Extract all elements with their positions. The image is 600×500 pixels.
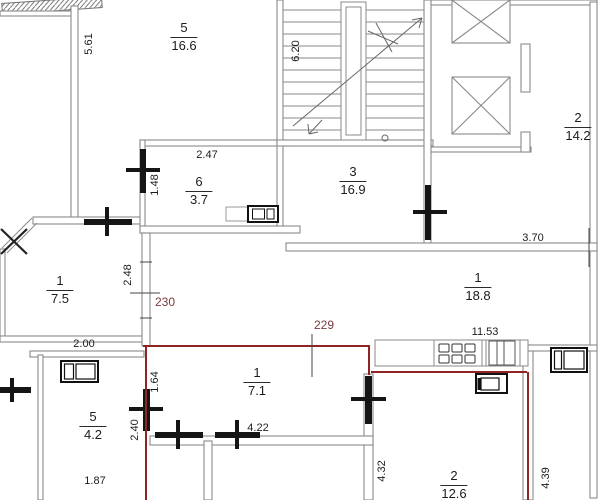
room-area: 7.1 bbox=[243, 383, 270, 399]
room-area: 16.9 bbox=[339, 182, 366, 198]
room-number: 2 bbox=[440, 469, 467, 486]
dimension-label: 1.87 bbox=[84, 475, 105, 487]
room-label-5-16.6: 5 16.6 bbox=[170, 21, 197, 54]
stairs-icon bbox=[283, 2, 424, 141]
dimension-label: 4.32 bbox=[376, 460, 388, 481]
room-area: 18.8 bbox=[464, 288, 491, 304]
room-label-3-16.9: 3 16.9 bbox=[339, 165, 366, 198]
unit-number-label: 230 bbox=[155, 295, 175, 309]
dimension-label: 4.22 bbox=[247, 422, 268, 434]
dimension-label: 11.53 bbox=[472, 326, 499, 338]
dimension-label: 1.48 bbox=[149, 174, 161, 195]
room-number: 2 bbox=[564, 111, 591, 128]
room-area: 7.5 bbox=[46, 291, 73, 307]
room-number: 1 bbox=[243, 366, 270, 383]
room-number: 6 bbox=[185, 175, 212, 192]
room-area: 4.2 bbox=[79, 427, 106, 443]
dimension-label: 1.64 bbox=[149, 371, 161, 392]
dimension-label: 2.00 bbox=[73, 338, 94, 350]
room-area: 14.2 bbox=[564, 128, 591, 144]
appliance-icon bbox=[551, 348, 587, 372]
bathroom-sink-icon bbox=[226, 206, 278, 222]
window-cross-icon bbox=[1, 229, 27, 254]
floor-plan: 5 16.6 6 3.7 3 16.9 2 14.2 1 7.5 1 18.8 … bbox=[0, 0, 600, 500]
kitchen-counter bbox=[375, 340, 528, 366]
room-number: 3 bbox=[339, 165, 366, 182]
dimension-label: 4.39 bbox=[540, 467, 552, 488]
room-label-5-4.2: 5 4.2 bbox=[79, 410, 106, 443]
sink-icon bbox=[476, 374, 507, 393]
dimension-label: 5.61 bbox=[83, 33, 95, 54]
new-partition-walls bbox=[143, 346, 528, 500]
room-area: 3.7 bbox=[185, 192, 212, 208]
room-number: 1 bbox=[46, 274, 73, 291]
room-label-2-12.6: 2 12.6 bbox=[440, 469, 467, 500]
room-area: 16.6 bbox=[170, 38, 197, 54]
room-label-1-18.8: 1 18.8 bbox=[464, 271, 491, 304]
room-number: 1 bbox=[464, 271, 491, 288]
dimension-label: 3.70 bbox=[522, 232, 543, 244]
dimension-label: 2.47 bbox=[196, 149, 217, 161]
room-label-1-7.1: 1 7.1 bbox=[243, 366, 270, 399]
unit-number-label: 229 bbox=[314, 318, 334, 332]
elevator-shaft-icon bbox=[452, 0, 510, 134]
dimension-label: 6.20 bbox=[290, 40, 302, 61]
kitchen-sink-icon bbox=[489, 341, 515, 365]
dimension-label: 2.40 bbox=[129, 419, 141, 440]
room-number: 5 bbox=[79, 410, 106, 427]
dimension-label: 2.48 bbox=[122, 264, 134, 285]
room-number: 5 bbox=[170, 21, 197, 38]
room-area: 12.6 bbox=[440, 486, 467, 500]
room-label-1-7.5: 1 7.5 bbox=[46, 274, 73, 307]
room-label-6-3.7: 6 3.7 bbox=[185, 175, 212, 208]
washing-machine-icon bbox=[61, 361, 98, 382]
room-label-2-14.2: 2 14.2 bbox=[564, 111, 591, 144]
